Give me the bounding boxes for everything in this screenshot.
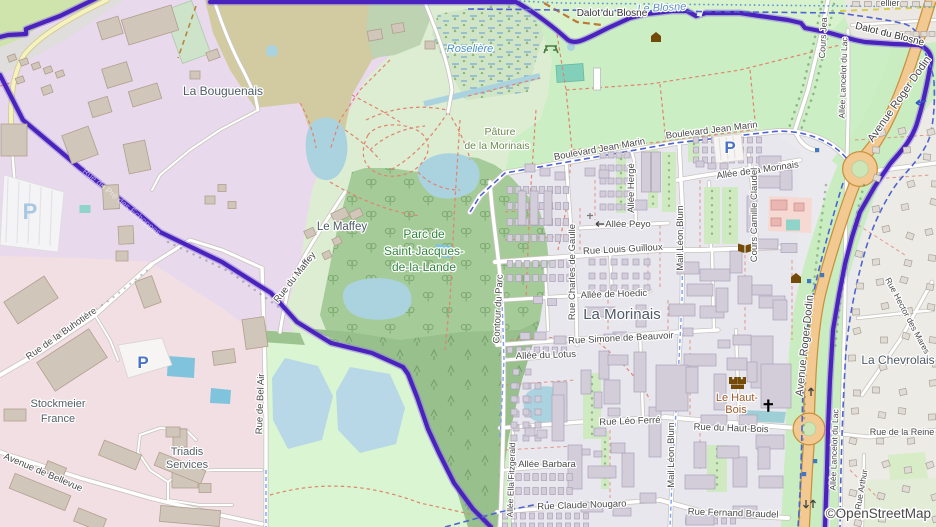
svg-text:©OpenStreetMap: ©OpenStreetMap [826,506,931,521]
svg-text:Rue de Bel Air: Rue de Bel Air [254,373,267,434]
svg-text:Allée Barbara: Allée Barbara [518,459,576,470]
svg-text:Le Haut-: Le Haut- [716,392,759,404]
svg-text:Rue Léo Ferré: Rue Léo Ferré [599,415,661,428]
svg-text:Triadis: Triadis [171,446,204,458]
svg-text:Dalot du Blosne: Dalot du Blosne [577,8,648,19]
svg-text:Allée Hergé: Allée Hergé [626,163,637,213]
svg-text:La Bouguenais: La Bouguenais [183,84,263,98]
svg-text:Roselière: Roselière [447,43,493,55]
svg-text:Pâture: Pâture [485,126,516,138]
svg-text:Le Maffey: Le Maffey [317,221,368,233]
svg-text:Rue Charles de Gaulle: Rue Charles de Gaulle [567,224,578,320]
svg-text:Parc de: Parc de [403,227,445,241]
svg-text:P: P [724,138,735,157]
svg-text:Allée de Hoedic: Allée de Hoedic [580,288,647,301]
svg-text:ellier: ellier [880,0,899,8]
svg-text:P: P [23,199,38,224]
svg-text:Services: Services [166,459,209,471]
svg-text:P: P [137,353,148,372]
svg-text:Rue de la Reine: Rue de la Reine [870,427,935,437]
svg-text:La Morinais: La Morinais [583,306,661,323]
svg-text:Mail Léon Blum: Mail Léon Blum [675,205,686,271]
svg-text:Bois: Bois [725,404,747,416]
svg-text:France: France [41,413,75,425]
svg-text:Mail Léon Blum: Mail Léon Blum [666,422,677,488]
svg-text:de la Morinais: de la Morinais [464,140,529,152]
svg-text:Saint-Jacques-: Saint-Jacques- [384,244,464,258]
svg-text:Allée Peyo: Allée Peyo [605,219,650,230]
svg-text:Allée du Lotus: Allée du Lotus [516,349,577,362]
svg-text:de-la-Lande: de-la-Lande [392,260,456,274]
svg-text:Stockmeier: Stockmeier [30,398,85,410]
svg-text:Cours Camille Claudel: Cours Camille Claudel [749,168,760,263]
